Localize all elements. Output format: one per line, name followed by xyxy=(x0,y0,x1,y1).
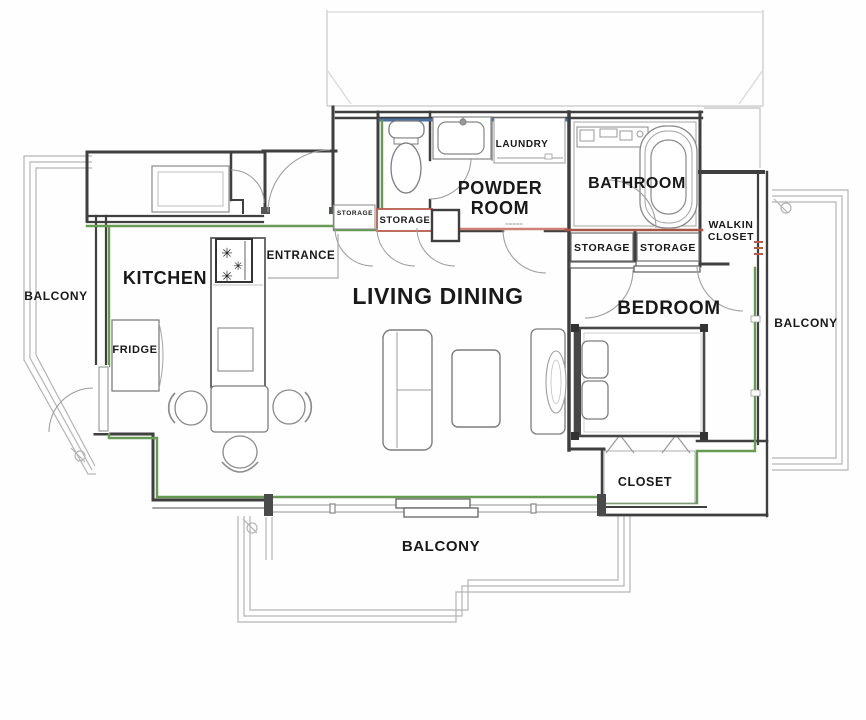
pillow xyxy=(582,341,608,378)
room-label-walkin-line1: WALKIN xyxy=(708,219,753,231)
coffee-table xyxy=(452,350,500,427)
bed xyxy=(571,324,708,440)
balcony-right-outline xyxy=(772,190,848,470)
storage-door-arc xyxy=(335,228,373,266)
utility-door-arc xyxy=(231,170,264,203)
balcony-left-outline xyxy=(24,156,96,474)
dining-table xyxy=(211,386,268,432)
floor-plan-svg: ✳ ✳ ✳ xyxy=(0,0,866,720)
utility-counter xyxy=(152,166,229,212)
powder-sink xyxy=(433,117,491,159)
burner-icon: ✳ xyxy=(221,268,233,284)
room-label-balcony-right: BALCONY xyxy=(774,316,838,330)
burner-icon: ✳ xyxy=(221,245,233,261)
room-label-fridge: FRIDGE xyxy=(112,344,157,356)
powder-door-arc xyxy=(503,230,546,273)
balcony-bottom-outline xyxy=(238,516,630,622)
room-label-powder-line2: ROOM xyxy=(471,198,529,218)
storage-entry-small-box xyxy=(334,205,375,229)
pillow xyxy=(582,381,608,419)
dining-chair xyxy=(222,436,258,472)
room-label-kitchen: KITCHEN xyxy=(123,268,207,288)
front-door-arc xyxy=(268,150,330,212)
dining-chair xyxy=(273,390,311,424)
room-label-living-dining: LIVING DINING xyxy=(352,283,523,309)
kitchen-sink xyxy=(218,328,253,371)
entry-cabinet xyxy=(432,210,459,241)
room-label-closet: CLOSET xyxy=(618,475,672,489)
floor-plan-page: ✳ ✳ ✳ xyxy=(0,0,866,720)
dining-chair xyxy=(169,391,207,425)
room-label-powder-line1: POWDER xyxy=(458,178,543,198)
kitchen-balcony-door-arc xyxy=(49,388,93,432)
burner-icon: ✳ xyxy=(233,259,243,273)
room-label-storage-bedroom-left: STORAGE xyxy=(574,242,630,254)
sofa xyxy=(383,330,432,450)
hanger-triangle-icon xyxy=(662,435,690,453)
toilet xyxy=(389,121,424,193)
tv-board xyxy=(531,329,566,434)
room-label-bathroom: BATHROOM xyxy=(588,175,686,192)
room-label-balcony-left: BALCONY xyxy=(24,289,88,303)
room-label-walkin-line2: CLOSET xyxy=(708,231,754,243)
room-label-storage-entry-small: STORAGE xyxy=(337,210,373,217)
hanger-triangle-icon xyxy=(606,435,634,453)
room-label-bedroom: BEDROOM xyxy=(617,298,720,319)
closet-box xyxy=(604,435,695,503)
storage-door-arc xyxy=(377,228,415,266)
room-label-balcony-bottom: BALCONY xyxy=(402,538,480,555)
room-label-storage-bedroom-right: STORAGE xyxy=(640,242,696,254)
room-label-entrance: ENTRANCE xyxy=(267,250,336,262)
room-label-laundry: LAUNDRY xyxy=(496,139,549,150)
room-label-storage-entry: STORAGE xyxy=(379,215,430,226)
